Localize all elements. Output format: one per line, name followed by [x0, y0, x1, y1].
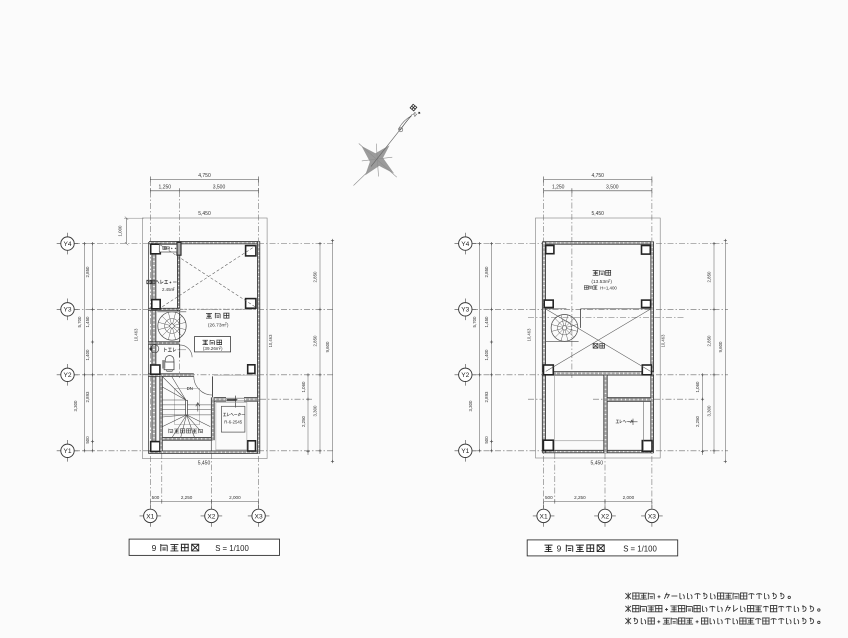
svg-text:1,250: 1,250 — [552, 185, 565, 191]
svg-text:2,250: 2,250 — [695, 415, 700, 427]
svg-text:2,850: 2,850 — [313, 271, 318, 283]
svg-text:5,450: 5,450 — [198, 460, 211, 466]
svg-text:2,850: 2,850 — [707, 271, 712, 283]
svg-text:1,450: 1,450 — [85, 316, 90, 328]
svg-text:Y4: Y4 — [63, 241, 71, 248]
svg-text:2,850: 2,850 — [707, 335, 712, 347]
svg-text:Y3: Y3 — [461, 307, 469, 314]
svg-text:3,300: 3,300 — [313, 405, 318, 417]
svg-text:X3: X3 — [255, 513, 263, 520]
svg-text:5,700: 5,700 — [472, 316, 477, 328]
svg-text:500: 500 — [545, 495, 553, 500]
svg-text:1,060: 1,060 — [695, 381, 700, 393]
svg-text:2: 2 — [173, 287, 175, 291]
svg-text:5,700: 5,700 — [77, 316, 82, 328]
svg-text:1,400: 1,400 — [484, 349, 489, 361]
svg-text:X1: X1 — [540, 513, 548, 520]
svg-text:1,250: 1,250 — [159, 185, 172, 191]
svg-text:H=1,400: H=1,400 — [600, 285, 617, 290]
svg-text:2,000: 2,000 — [623, 495, 635, 500]
svg-text:5,450: 5,450 — [198, 211, 211, 217]
svg-text:X1: X1 — [146, 513, 154, 520]
svg-text:9,600: 9,600 — [718, 341, 723, 353]
svg-text:1,450: 1,450 — [484, 316, 489, 328]
svg-text:R-6-2545: R-6-2545 — [224, 419, 243, 424]
svg-text:1,000: 1,000 — [118, 225, 123, 237]
svg-text:Y2: Y2 — [63, 372, 71, 379]
svg-text:Y1: Y1 — [461, 448, 469, 455]
svg-text:Y2: Y2 — [461, 372, 469, 379]
svg-text:X2: X2 — [601, 513, 609, 520]
svg-text:4,750: 4,750 — [591, 173, 604, 179]
svg-text:9: 9 — [152, 543, 157, 553]
svg-text:10,463: 10,463 — [133, 328, 138, 341]
svg-text:X3: X3 — [648, 513, 656, 520]
svg-text:2,850: 2,850 — [85, 266, 90, 278]
svg-text:2,893: 2,893 — [484, 391, 489, 403]
svg-text:Y4: Y4 — [461, 241, 469, 248]
svg-text:1,400: 1,400 — [85, 349, 90, 361]
svg-text:S = 1/100: S = 1/100 — [215, 544, 249, 553]
svg-text:10,463: 10,463 — [526, 328, 531, 341]
svg-text:2,000: 2,000 — [229, 495, 241, 500]
svg-text:9,600: 9,600 — [325, 341, 330, 353]
svg-text:1,060: 1,060 — [301, 381, 306, 393]
svg-text:(39.26m: (39.26m — [203, 346, 220, 351]
svg-text:(26.73m: (26.73m — [208, 322, 226, 328]
svg-text:S = 1/100: S = 1/100 — [623, 544, 657, 553]
svg-text:3,300: 3,300 — [468, 400, 473, 412]
svg-text:2,850: 2,850 — [313, 335, 318, 347]
svg-text:10,463: 10,463 — [660, 334, 665, 347]
svg-text:3,500: 3,500 — [213, 185, 226, 191]
svg-text:4,750: 4,750 — [198, 173, 211, 179]
svg-text:10,463: 10,463 — [268, 334, 273, 347]
svg-text:3,500: 3,500 — [606, 185, 619, 191]
svg-text:3,300: 3,300 — [707, 405, 712, 417]
svg-text:X2: X2 — [207, 513, 215, 520]
svg-text:500: 500 — [484, 436, 489, 444]
svg-text:5,450: 5,450 — [591, 211, 604, 217]
svg-text:2,250: 2,250 — [301, 415, 306, 427]
svg-text:500: 500 — [85, 436, 90, 444]
svg-text:500: 500 — [152, 495, 160, 500]
svg-text:Y1: Y1 — [63, 448, 71, 455]
svg-text:2,850: 2,850 — [484, 266, 489, 278]
svg-text:2,250: 2,250 — [574, 495, 586, 500]
svg-text:DN: DN — [187, 386, 193, 391]
svg-text:5,450: 5,450 — [591, 460, 604, 466]
svg-text:Y3: Y3 — [63, 307, 71, 314]
svg-text:2,893: 2,893 — [85, 391, 90, 403]
svg-text:2,250: 2,250 — [181, 495, 193, 500]
svg-text:(13.53m: (13.53m — [591, 279, 609, 285]
svg-text:3,300: 3,300 — [73, 400, 78, 412]
svg-text:9: 9 — [557, 543, 562, 553]
